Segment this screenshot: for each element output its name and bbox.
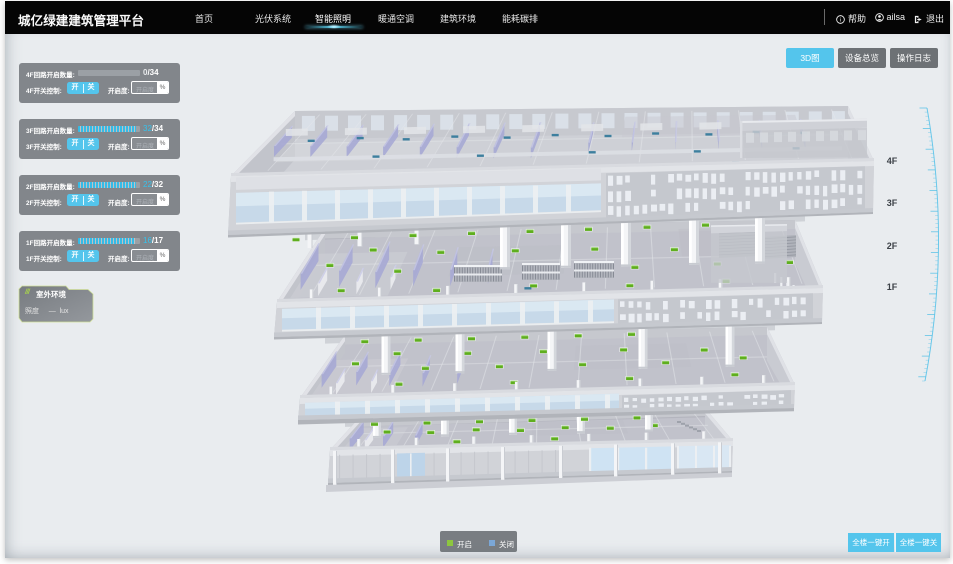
svg-text:i: i: [840, 17, 841, 23]
